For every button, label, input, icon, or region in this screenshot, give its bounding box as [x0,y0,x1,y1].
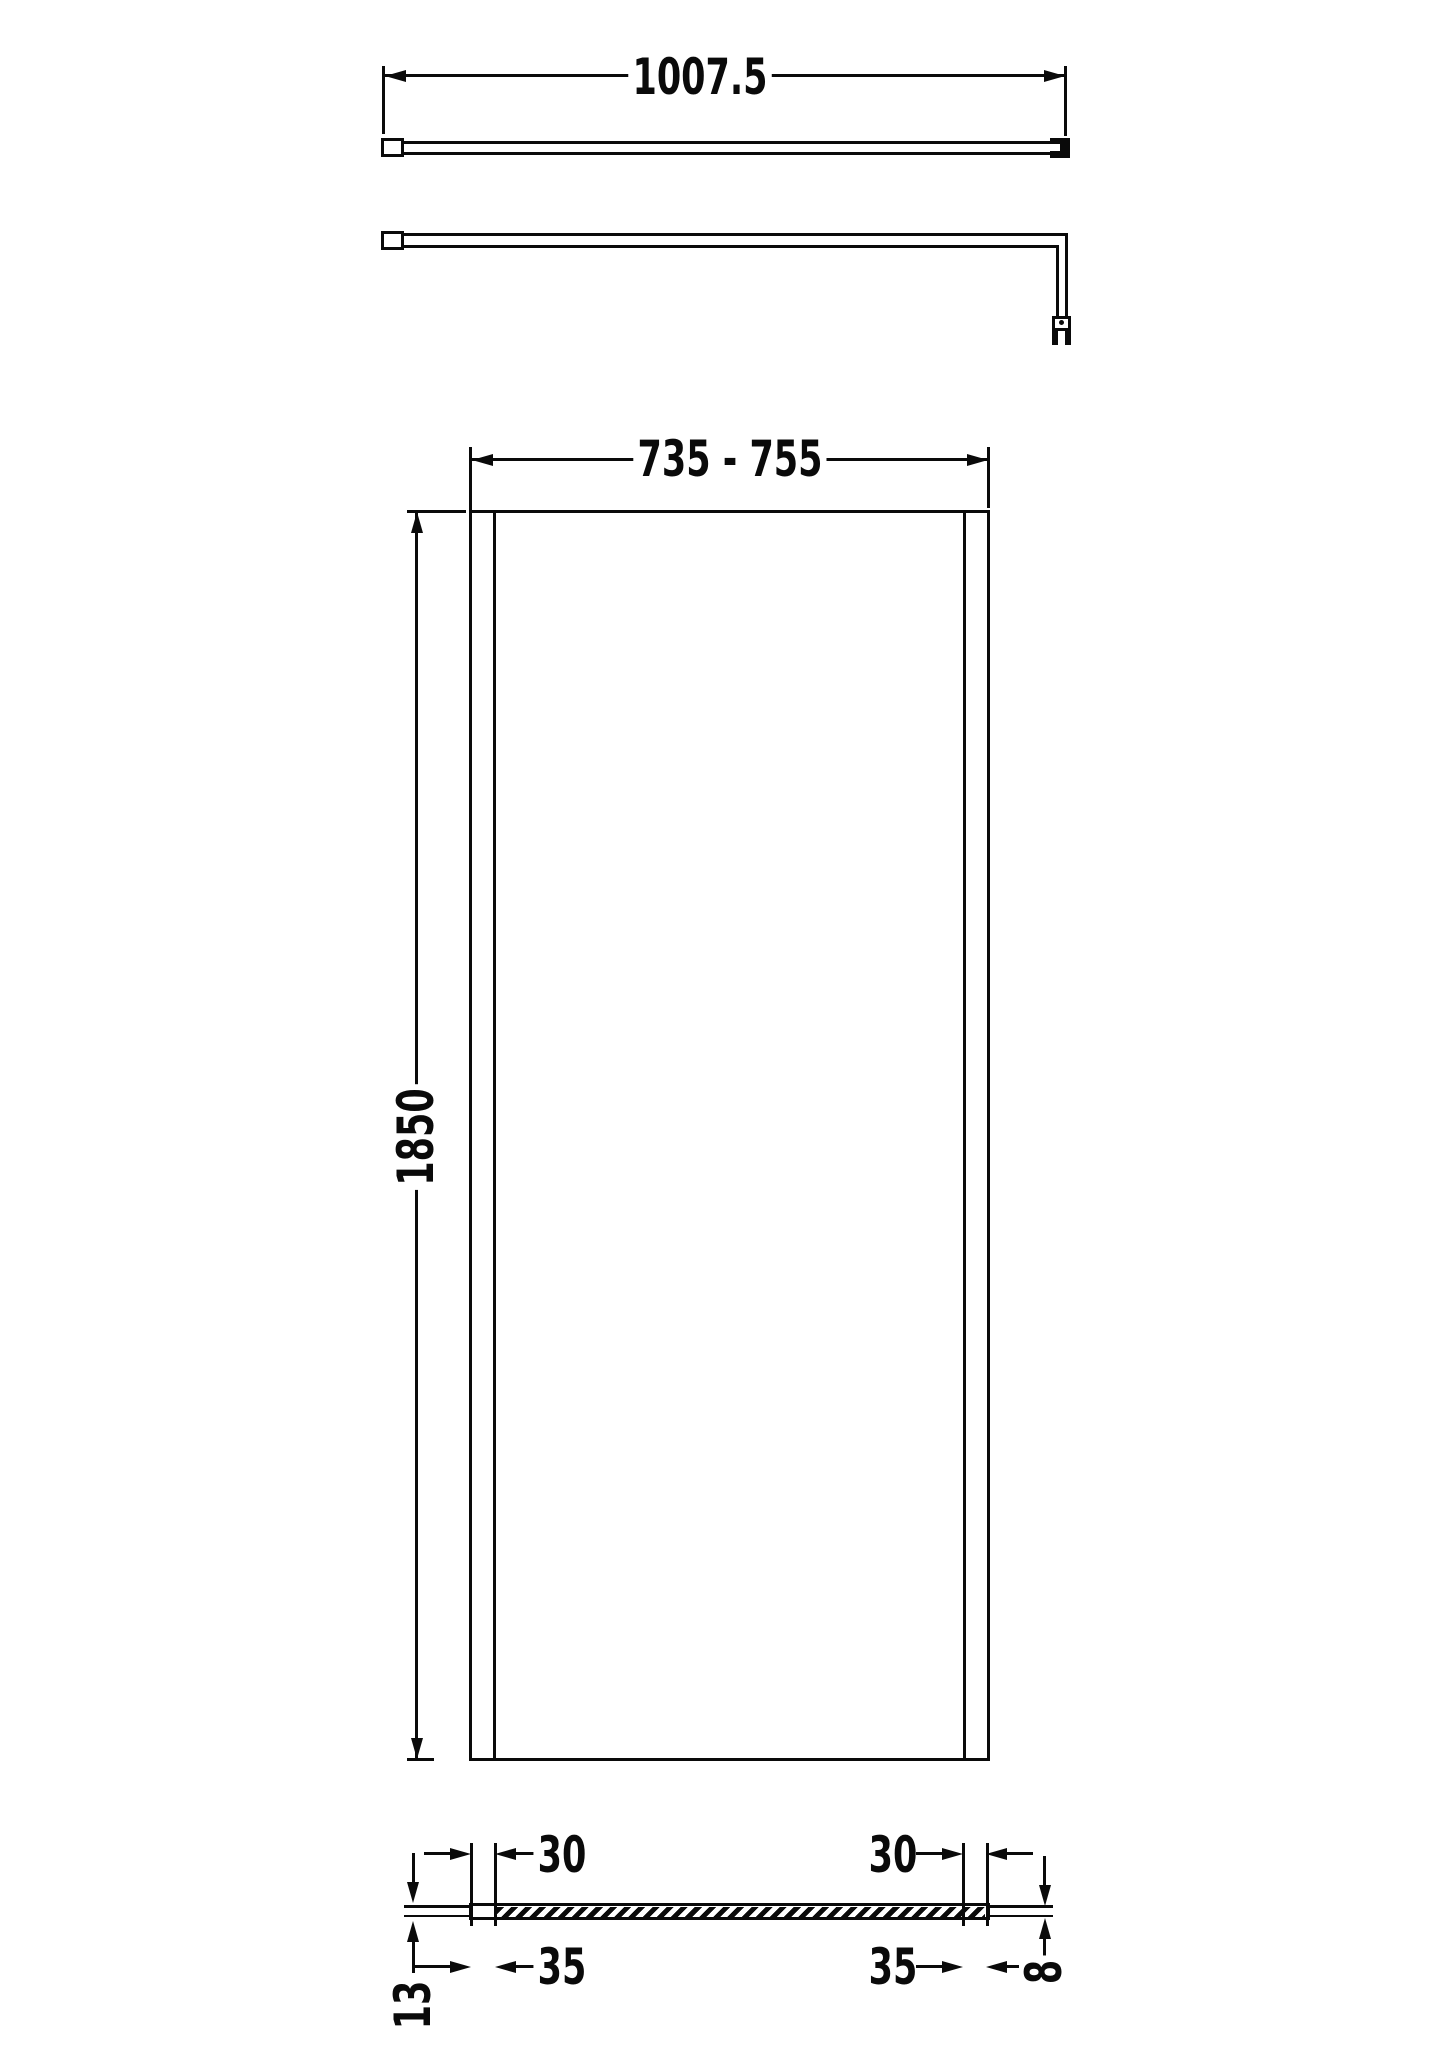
arrowhead-down [1039,1885,1051,1906]
wall-bracket [381,138,404,157]
arrowhead-right [967,454,988,466]
bar-drop-outer-edge [1065,233,1068,317]
dim-label-bar-length: 1007.5 [628,52,771,102]
glass-clamp-leg [1065,331,1071,345]
dim-label-panel-width: 735 - 755 [633,434,826,484]
dimension-line [1004,1852,1033,1855]
support-bar [404,141,1050,155]
technical-drawing: 1007.5 735 - 755 1850 [0,0,1445,2045]
dim-label-wall-profile-depth: 13 [388,1976,438,2033]
arrowhead-right [942,1848,963,1860]
dim-label-panel-height: 1850 [391,1084,441,1190]
left-profile-inner-edge [493,510,496,1761]
bar-top-edge [404,233,1068,236]
wall-stub-line [404,1915,470,1918]
arrowhead-right [450,1961,471,1973]
glass-hatch [497,1907,985,1917]
dim-label-glass-thickness: 8 [1019,1956,1069,1989]
arrowhead-up [1039,1918,1051,1939]
wall-bracket [381,231,404,250]
dimension-line [412,1939,415,1973]
glass-clamp-leg [1052,331,1058,345]
dim-label-profile-width-left: 35 [533,1942,590,1992]
arrowhead-left [472,454,493,466]
dimension-line [916,1852,942,1855]
arrowhead-down [411,1738,423,1759]
arrowhead-right [450,1848,471,1860]
bar-end-cap-notch [1044,144,1060,151]
arrowhead-down [407,1882,419,1903]
right-profile-inner-edge [963,510,966,1761]
dimension-line [1043,1856,1046,1885]
dimension-line [412,1853,415,1883]
wall-stub-line [404,1905,470,1908]
arrowhead-right [1044,70,1065,82]
glass-clamp-pin [1059,320,1064,325]
dim-label-cap-width-left: 30 [533,1830,590,1880]
panel-outline [469,510,990,1761]
dimension-line [916,1965,942,1968]
dim-label-profile-width-right: 35 [864,1942,921,1992]
dimension-line [413,1965,454,1968]
arrowhead-left [385,70,406,82]
bar-bottom-edge [404,245,1057,248]
arrowhead-up [411,512,423,533]
glass-stub-line [988,1915,1053,1918]
dim-label-cap-width-right: 30 [864,1830,921,1880]
arrowhead-right [942,1961,963,1973]
bar-drop-inner-edge [1056,245,1059,318]
